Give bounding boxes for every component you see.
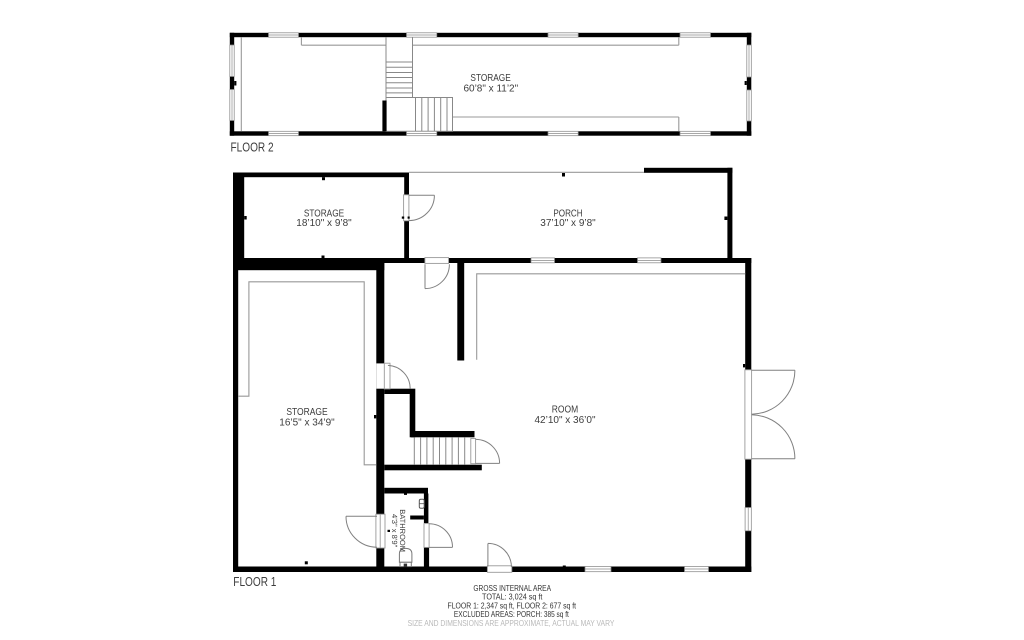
svg-text:PORCH: PORCH	[553, 208, 582, 219]
svg-text:4’3" x 8’9": 4’3" x 8’9"	[390, 514, 399, 548]
svg-text:60’8" x 11’2": 60’8" x 11’2"	[463, 84, 518, 95]
svg-text:ROOM: ROOM	[552, 404, 578, 415]
svg-text:FLOOR 2: FLOOR 2	[231, 142, 274, 155]
svg-text:16’5" x 34’9": 16’5" x 34’9"	[279, 417, 335, 428]
svg-text:STORAGE: STORAGE	[286, 406, 327, 417]
svg-text:STORAGE: STORAGE	[470, 72, 510, 83]
svg-text:37’10" x 9’8": 37’10" x 9’8"	[540, 218, 596, 229]
svg-text:18’10" x 9’8": 18’10" x 9’8"	[296, 218, 352, 229]
svg-text:FLOOR 1: FLOOR 1	[233, 576, 276, 589]
svg-text:42’10" x 36’0": 42’10" x 36’0"	[534, 415, 595, 426]
svg-text:STORAGE: STORAGE	[304, 208, 344, 219]
svg-text:SIZE AND DIMENSIONS ARE APPROX: SIZE AND DIMENSIONS ARE APPROXIMATE, ACT…	[408, 618, 615, 628]
